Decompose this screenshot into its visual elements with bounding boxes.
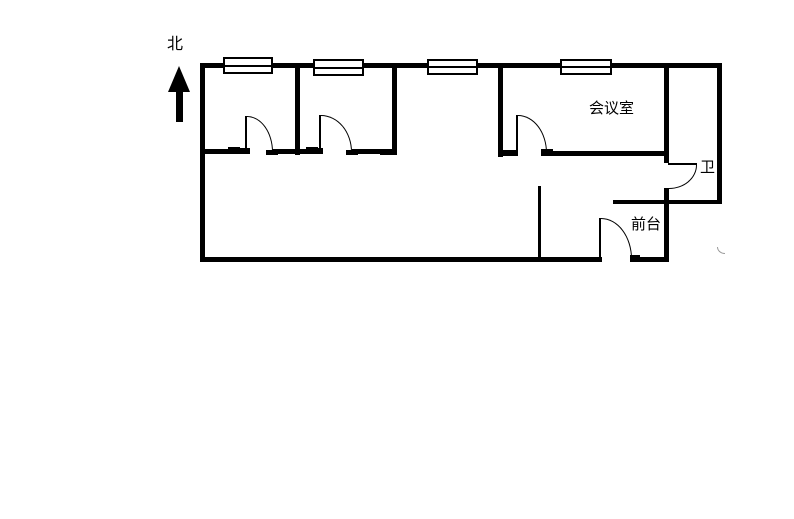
door-arc-room1 (247, 116, 273, 152)
window-3-pane-line (429, 66, 476, 68)
wall-right (717, 63, 722, 204)
floorplan-drawing (0, 0, 794, 519)
door-arc-meeting (518, 115, 547, 153)
wall-meeting-south (543, 151, 667, 156)
door-arc-room2 (321, 115, 352, 152)
floorplan-canvas: 北 会议室 卫 前台 (0, 0, 794, 519)
wall-divider-room2-room3-foot (380, 150, 397, 155)
wall-meeting-west (498, 65, 503, 157)
window-4 (560, 59, 612, 75)
toilet-label: 卫 (700, 160, 715, 177)
jamb-room1-left (228, 147, 240, 154)
window-1 (223, 57, 273, 74)
wall-toilet-west-lower (664, 188, 669, 262)
door-arc-main (601, 218, 632, 259)
north-arrow-shaft (176, 91, 183, 122)
wall-toilet-west-upper (664, 63, 669, 163)
window-4-pane-line (562, 66, 610, 68)
wall-divider-room1-room2 (295, 65, 300, 155)
window-1-pane-line (225, 65, 271, 67)
meeting-room-label: 会议室 (589, 101, 634, 118)
window-2-pane-line (315, 67, 362, 69)
partition-reception (538, 186, 541, 260)
window-2 (313, 59, 364, 76)
north-label: 北 (167, 36, 183, 54)
wall-meeting-south-stub (498, 150, 518, 156)
north-arrow-icon (168, 66, 190, 92)
window-3 (427, 59, 478, 75)
door-arc-toilet (669, 165, 697, 189)
reception-label: 前台 (631, 217, 661, 234)
wall-divider-room2-room3 (392, 65, 397, 153)
wall-left (200, 63, 205, 262)
